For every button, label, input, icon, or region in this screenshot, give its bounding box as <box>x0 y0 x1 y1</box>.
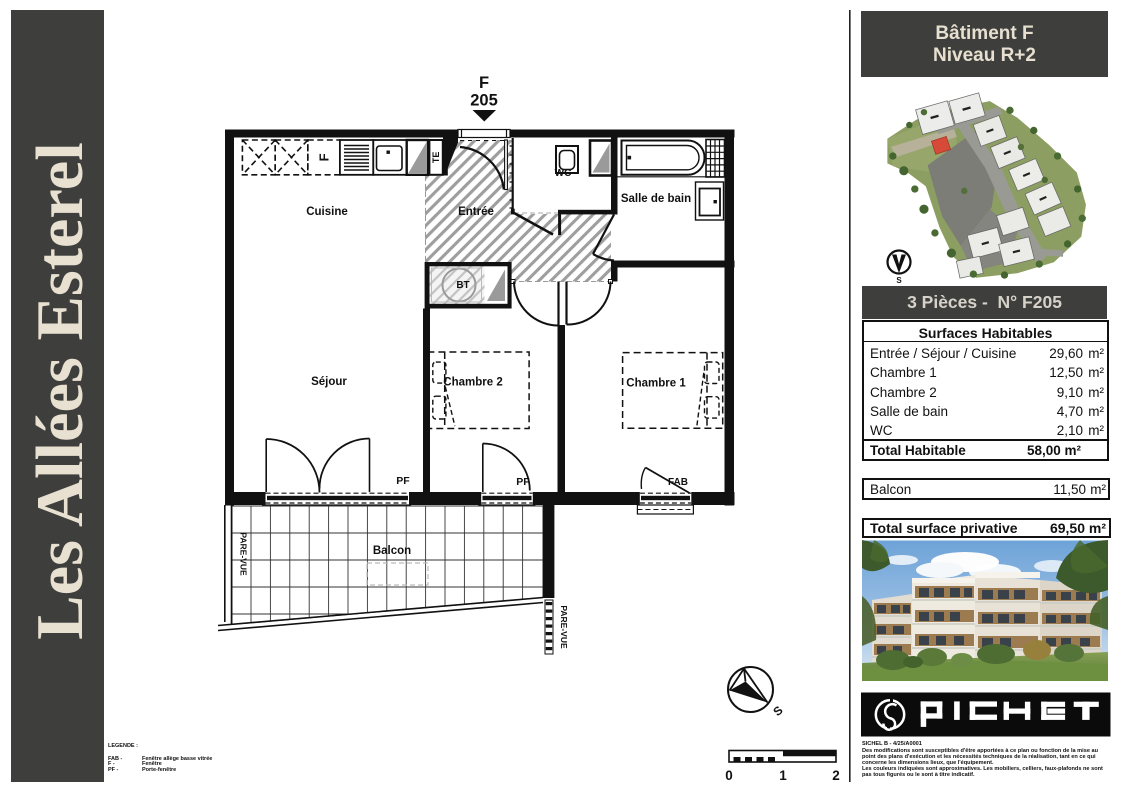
svg-text:S: S <box>896 276 902 285</box>
